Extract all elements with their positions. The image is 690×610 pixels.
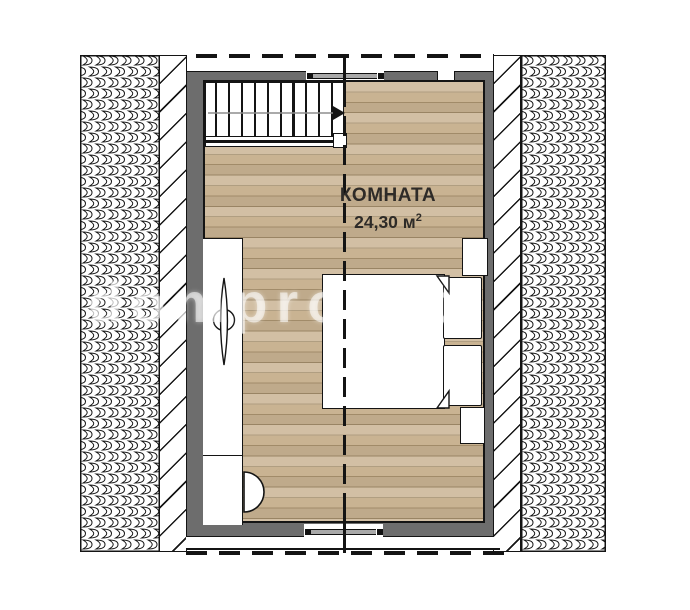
stair-tread	[331, 83, 333, 136]
room-area-label: 24,30 м2	[332, 212, 444, 233]
room-area-value: 24,30 м	[354, 212, 416, 232]
cabinet	[203, 455, 243, 525]
stair-tread	[305, 83, 307, 136]
stair-tread	[280, 83, 282, 136]
stair-stringer-line	[206, 136, 343, 137]
wardrobe	[203, 238, 243, 457]
stair-tread	[318, 83, 320, 136]
stair-railing	[206, 140, 334, 143]
window-jamb-icon	[377, 529, 383, 535]
top-wall-niche	[437, 71, 455, 81]
ridge-line-top	[343, 55, 346, 87]
nightstand-bottom	[460, 407, 485, 444]
watermark: domproekt	[88, 272, 603, 334]
stair-tread	[292, 83, 294, 136]
room-name-label: КОМНАТА	[332, 186, 444, 207]
stair-tread	[228, 83, 230, 136]
stair-tread	[241, 83, 243, 136]
floor-plan: КОМНАТА 24,30 м2 domproekt	[0, 0, 690, 610]
room-area-superscript: 2	[416, 212, 422, 224]
window-jamb-icon	[378, 73, 384, 79]
stairs	[205, 82, 344, 147]
bed-pillow-2	[443, 345, 482, 406]
window-jamb-icon	[307, 73, 313, 79]
stair-tread	[215, 83, 217, 136]
stair-tread	[254, 83, 256, 136]
roof-overhang-dashed-line-bottom	[186, 551, 506, 555]
nightstand-top	[462, 238, 488, 276]
stair-tread	[267, 83, 269, 136]
window-jamb-icon	[305, 529, 311, 535]
cabinet-half-round-seat	[244, 472, 264, 512]
ridge-line-bottom	[343, 505, 346, 553]
